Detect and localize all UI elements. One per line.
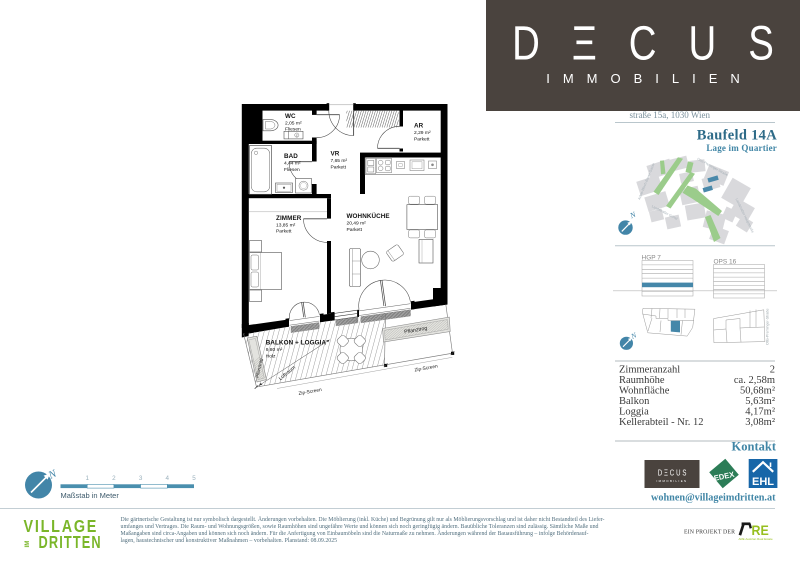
svg-text:4,17m²: 4,17m²: [745, 407, 775, 418]
svg-text:9,80 m²: 9,80 m²: [266, 347, 283, 353]
svg-text:2,29 m²: 2,29 m²: [414, 130, 431, 136]
svg-text:Balkon: Balkon: [619, 396, 650, 407]
svg-text:DRITTEN: DRITTEN: [39, 533, 102, 553]
svg-text:BAD: BAD: [284, 153, 298, 160]
svg-text:Lage im Quartier: Lage im Quartier: [706, 143, 777, 153]
svg-text:umfanges und Vertrages. Die Ra: umfanges und Vertrages. Die Raum- und Wo…: [121, 523, 599, 530]
svg-text:Parkett: Parkett: [347, 227, 363, 233]
svg-text:Zimmeranzahl: Zimmeranzahl: [619, 365, 680, 376]
svg-text:wohnen@villageimdritten.at: wohnen@villageimdritten.at: [651, 492, 776, 504]
svg-text:20,49 m²: 20,49 m²: [347, 221, 367, 227]
svg-text:Loggia: Loggia: [619, 407, 649, 418]
svg-text:ARE Austrian Real Estate: ARE Austrian Real Estate: [739, 537, 774, 541]
svg-text:4,44 m²: 4,44 m²: [284, 161, 301, 167]
svg-text:Maßstab in Meter: Maßstab in Meter: [61, 491, 120, 500]
svg-text:13,85 m²: 13,85 m²: [276, 222, 296, 228]
svg-text:AR: AR: [414, 123, 424, 130]
svg-text:4: 4: [166, 475, 170, 482]
svg-text:Wohnfläche: Wohnfläche: [619, 386, 670, 397]
svg-text:Maßangaben sind circa-Angaben: Maßangaben sind circa-Angaben und können…: [121, 530, 589, 537]
svg-text:IMMOBILIEN: IMMOBILIEN: [656, 479, 687, 483]
svg-text:Kontakt: Kontakt: [732, 440, 777, 454]
svg-text:7,65 m²: 7,65 m²: [331, 158, 348, 164]
svg-text:50,68m²: 50,68m²: [740, 386, 775, 397]
svg-text:ZIMMER: ZIMMER: [276, 215, 302, 222]
svg-text:Die gärtnerische Gestaltung is: Die gärtnerische Gestaltung ist nur symb…: [121, 516, 605, 523]
svg-text:1: 1: [85, 475, 89, 482]
svg-text:VR: VR: [331, 151, 340, 158]
svg-text:3,08m²: 3,08m²: [745, 417, 775, 428]
svg-text:2: 2: [770, 365, 775, 376]
svg-text:3: 3: [139, 475, 143, 482]
svg-text:ca. 2,58m: ca. 2,58m: [734, 375, 775, 386]
svg-text:c: c: [296, 133, 298, 138]
svg-text:Fliesen: Fliesen: [285, 127, 301, 133]
svg-text:Holz: Holz: [266, 353, 276, 359]
svg-text:Parkett: Parkett: [331, 164, 347, 170]
svg-text:WOHNKÜCHE: WOHNKÜCHE: [347, 211, 390, 220]
svg-text:WC: WC: [285, 113, 296, 120]
svg-text:Otto-Preminger-Straße: Otto-Preminger-Straße: [766, 308, 770, 345]
svg-text:Parkett: Parkett: [276, 229, 292, 235]
svg-text:IMMOBILIEN: IMMOBILIEN: [546, 71, 753, 86]
svg-text:EIN PROJEKT DER: EIN PROJEKT DER: [684, 530, 735, 536]
svg-text:Parkett: Parkett: [414, 136, 430, 142]
svg-text:5,63m²: 5,63m²: [745, 396, 775, 407]
svg-text:Fliesen: Fliesen: [284, 167, 300, 173]
svg-text:straße 15a, 1030 Wien: straße 15a, 1030 Wien: [630, 110, 711, 120]
svg-text:DΞCUS: DΞCUS: [512, 18, 800, 71]
svg-text:2,05 m²: 2,05 m²: [285, 120, 302, 126]
svg-text:DΞCUS: DΞCUS: [658, 470, 689, 478]
svg-text:Kellerabteil - Nr. 12: Kellerabteil - Nr. 12: [619, 417, 704, 428]
svg-text:lagen, haustechnischer und kon: lagen, haustechnischer und konstruktiver…: [121, 537, 338, 544]
svg-text:IM: IM: [24, 541, 31, 548]
svg-text:5: 5: [192, 475, 196, 482]
svg-text:Raumhöhe: Raumhöhe: [619, 375, 665, 386]
svg-text:BALKON + LOGGIA: BALKON + LOGGIA: [266, 340, 327, 347]
svg-text:RE: RE: [752, 523, 770, 539]
svg-text:Baufeld 14A: Baufeld 14A: [697, 128, 777, 144]
svg-text:2: 2: [112, 475, 116, 482]
svg-text:EHL: EHL: [752, 476, 774, 488]
